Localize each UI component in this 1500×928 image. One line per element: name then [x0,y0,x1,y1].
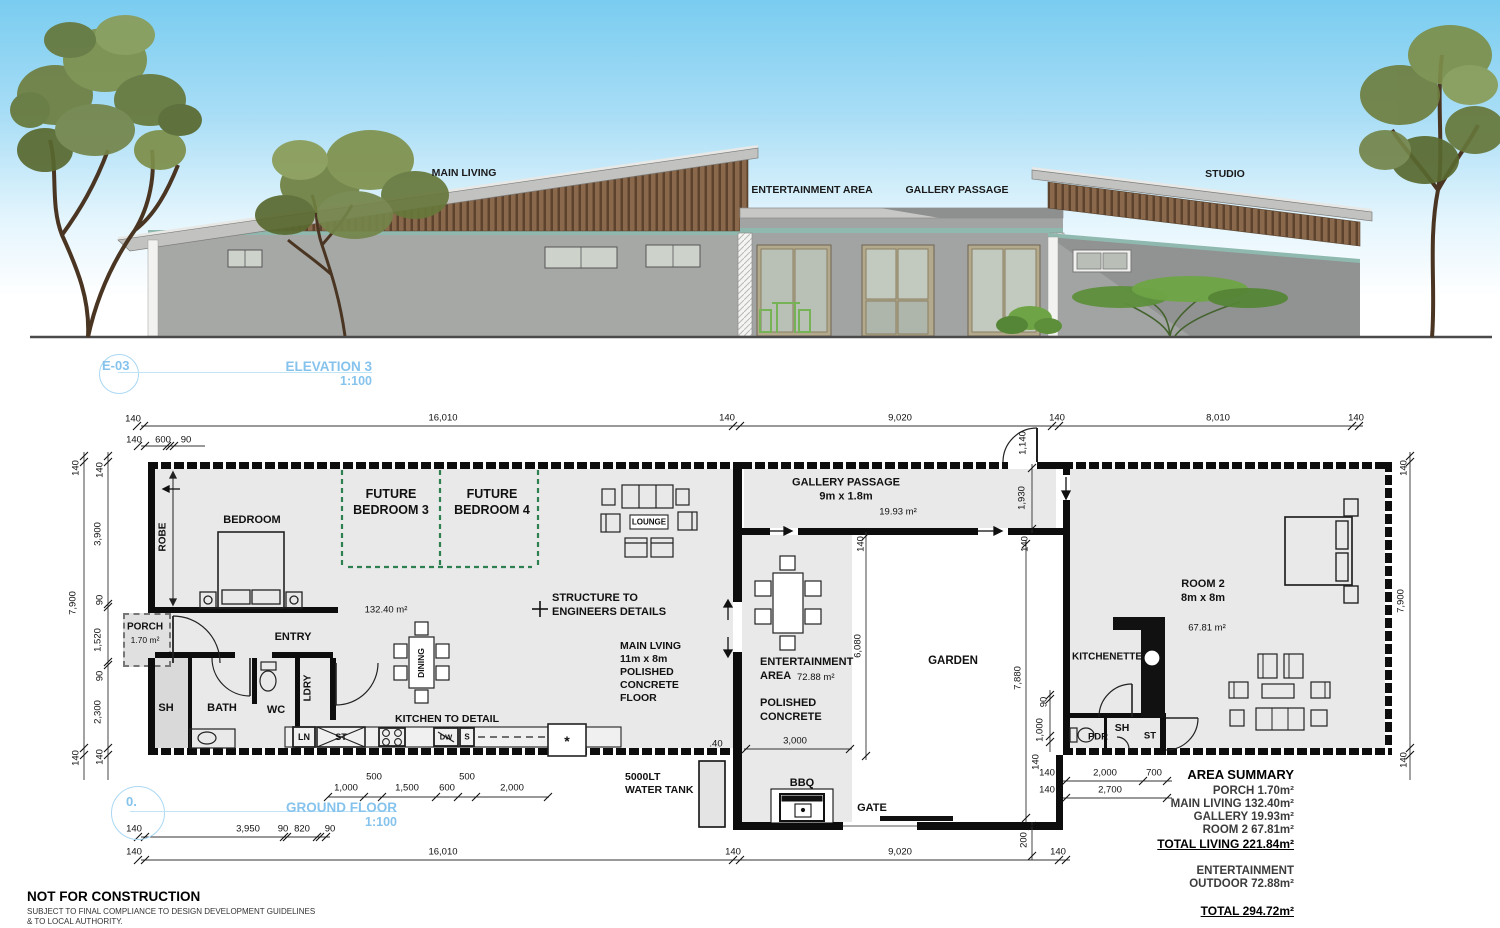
wall [742,528,770,535]
sink-label: S [464,733,469,742]
wall [1037,462,1063,469]
bbq-label: BBQ [790,777,814,789]
wall [798,528,978,535]
area-summary-line: GALLERY 19.93m² [1064,811,1294,824]
not-for-construction-title: NOT FOR CONSTRUCTION [27,889,200,904]
dim-label: 140 [1399,460,1410,476]
gate-label: GATE [857,802,887,814]
elevation-label-main-living: MAIN LIVING [432,167,497,179]
area-summary-outdoor-2: OUTDOOR 72.88m² [1064,878,1294,891]
wall [330,658,336,720]
dim-label: 140 [126,435,142,446]
wall [155,652,235,658]
wall [1063,462,1392,469]
dim-label: 1,930 [1017,486,1028,510]
dim-label: 3,900 [93,522,104,546]
garden-wall [733,822,843,830]
polished-concrete-label: POLISHED CONCRETE [760,697,822,724]
room2-floor [1070,469,1385,748]
dim-label: 140 [719,413,735,424]
porch-area-value: 1.70 m² [131,635,160,645]
wall [1160,713,1166,755]
stove-box-label: ST [335,732,347,742]
dim-label: 9,020 [888,847,912,858]
plan-title-block: GROUND FLOOR 1:100 [200,800,397,829]
not-for-construction-note: SUBJECT TO FINAL COMPLIANCE TO DESIGN DE… [27,907,315,926]
wall [148,748,740,755]
wall [742,462,1008,469]
elevation-label-entertainment: ENTERTAINMENT AREA [751,184,872,196]
island-star-label: * [564,733,569,749]
dim-label: 7,900 [1396,589,1407,613]
area-summary-title: AREA SUMMARY [1064,767,1294,782]
dim-label: 6,080 [853,634,864,658]
elevation-label-gallery: GALLERY PASSAGE [905,184,1008,196]
plan-title: GROUND FLOOR [200,800,397,815]
dim-label: 500 [459,772,475,783]
dim-label: 140 [1039,785,1055,796]
dim-label: 2,300 [93,700,104,724]
dim-label: 140 [1039,768,1055,779]
gallery-floor [744,469,1056,528]
store-label: ST [1144,731,1156,742]
entertainment-label-2: AREA [760,670,791,682]
area-summary: AREA SUMMARY PORCH 1.70m² MAIN LIVING 13… [1064,767,1294,918]
elevation-label-studio: STUDIO [1205,168,1245,180]
dim-label: 2,000 [500,783,524,794]
dim-label: 90 [95,595,106,606]
wall [1385,462,1392,755]
wall [1063,500,1070,755]
wall [1063,748,1392,755]
dim-label: 140 [125,414,141,425]
linen-label: LN [298,732,310,742]
architectural-sheet: MAIN LIVING ENTERTAINMENT AREA GALLERY P… [0,0,1500,928]
dim-label: 140 [95,749,106,765]
porch-label: PORCH [127,622,163,633]
dim-label: 140 [1399,752,1410,768]
wall [1008,528,1063,535]
structure-note: STRUCTURE TO ENGINEERS DETAILS [552,592,666,619]
dim-label: 1,520 [93,628,104,652]
garden-wall [917,822,1063,830]
wall [252,658,257,704]
dim-label: 140 [856,536,867,552]
dishwasher-label: DW [440,733,453,742]
dim-label: 9,020 [888,413,912,424]
dim-label: 1,500 [395,783,419,794]
room-label-future-bedroom-4: FUTURE BEDROOM 4 [454,486,530,518]
room-label-lounge: LOUNGE [632,518,666,527]
plan-badge: 0. [126,794,137,809]
main-living-note: MAIN LVING 11m x 8m POLISHED CONCRETE FL… [620,640,681,705]
dim-label: 200 [1019,832,1030,848]
powder-label: PDR [1088,732,1108,743]
elevation-title-block: ELEVATION 3 1:100 [180,359,372,388]
dim-label: 140 [71,460,82,476]
plan-badge-circle [111,786,165,840]
area-summary-outdoor-1: ENTERTAINMENT [1064,865,1294,878]
room-label-future-bedroom-3: FUTURE BEDROOM 3 [353,486,429,518]
elevation-badge: E-03 [102,358,129,373]
wall [272,652,333,658]
area-summary-total: TOTAL 294.72m² [1064,904,1294,918]
area-summary-total-living: TOTAL LIVING 221.84m² [1064,837,1294,851]
gallery-area-value: 19.93 m² [879,507,917,518]
area-summary-line: ROOM 2 67.81m² [1064,824,1294,837]
room2-label: ROOM 2 8m x 8m [1181,577,1225,605]
garden-label: GARDEN [928,655,978,667]
kitchen-label: KITCHEN TO DETAIL [395,713,499,725]
dim-label: 600 [155,435,171,446]
dim-label: 16,010 [428,847,457,858]
dim-label: 90 [1039,697,1050,708]
plan-scale: 1:100 [200,815,397,829]
bath-label: BATH [207,702,237,714]
dim-label: 3,000 [783,736,807,747]
dim-label: 1,000 [334,783,358,794]
main-living-area-value: 132.40 m² [365,605,408,616]
elevation-title: ELEVATION 3 [180,359,372,374]
wall [188,658,192,748]
wall [155,607,338,613]
gallery-label: GALLERY PASSAGE 9m x 1.8m [792,477,900,504]
dim-label: 140 [1348,413,1364,424]
dim-label: 140 [71,750,82,766]
wall [733,652,742,830]
elevation-scale: 1:100 [180,374,372,388]
dim-label: 90 [181,435,192,446]
dim-label: 140 [126,847,142,858]
water-tank-label: 5000LT WATER TANK [625,771,693,796]
dim-label: 1,140 [1018,431,1029,455]
entertainment-label-1: ENTERTAINMENT [760,656,853,668]
dim-label: 7,880 [1013,666,1024,690]
shower2-label: SH [1115,722,1130,734]
wall [1056,755,1063,830]
area-summary-line: PORCH 1.70m² [1064,785,1294,798]
dim-label: 8,010 [1206,413,1230,424]
laundry-label: LDRY [303,675,314,702]
wall [148,658,155,755]
room2-area-value: 67.81 m² [1188,623,1226,634]
dim-label: 140 [95,462,106,478]
wall [148,462,155,613]
dim-label: 500 [366,772,382,783]
dim-label: 90 [95,671,106,682]
area-summary-line: MAIN LIVING 132.40m² [1064,798,1294,811]
dining-label: DINING [416,648,426,678]
dim-label: 7,900 [68,591,79,615]
kitchenette-label: KITCHENETTE [1072,652,1142,663]
wall [733,462,742,602]
shower-label: SH [158,702,173,714]
dim-label: 140 [1020,536,1031,552]
dim-label: .40 [709,739,722,750]
dim-label: 140 [1049,413,1065,424]
room-label-robe: ROBE [158,523,169,552]
dim-label: 1,000 [1035,718,1046,742]
dim-label: 600 [439,783,455,794]
elevation-drawing [0,0,1500,350]
wc-label: WC [267,704,285,716]
room-label-bedroom: BEDROOM [223,514,280,526]
entertainment-area-value: 72.88 m² [797,672,835,683]
wall [148,462,740,469]
entry-label: ENTRY [275,631,312,643]
dim-label: 140 [725,847,741,858]
dim-label: 16,010 [428,413,457,424]
